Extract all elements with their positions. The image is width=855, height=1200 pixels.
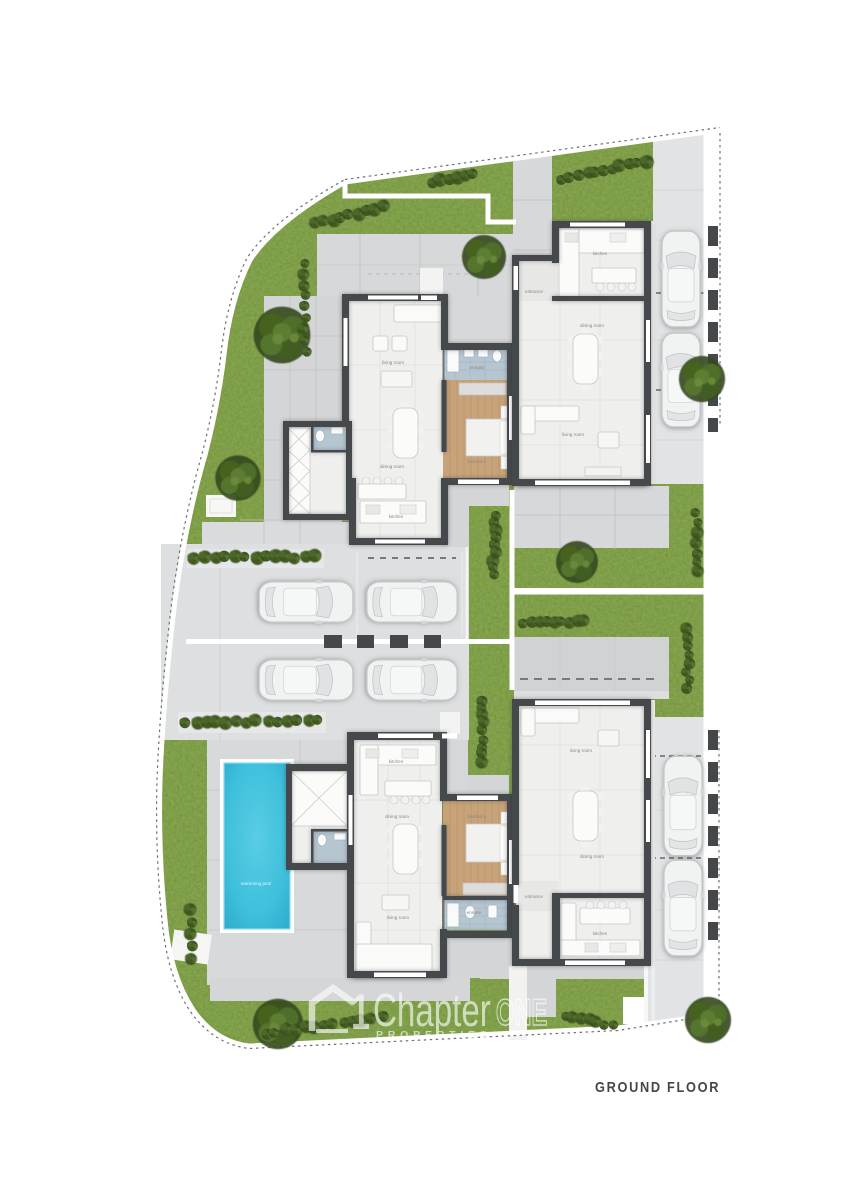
svg-text:1: 1	[351, 985, 370, 1041]
svg-text:living room: living room	[382, 360, 404, 365]
svg-text:kitchen: kitchen	[389, 759, 404, 764]
svg-text:dining room: dining room	[580, 323, 604, 328]
svg-text:bedroom: bedroom	[468, 459, 486, 464]
svg-text:living room: living room	[570, 748, 592, 753]
svg-text:entrance: entrance	[525, 894, 543, 899]
svg-text:ensuite: ensuite	[470, 365, 485, 370]
svg-text:swimming pool: swimming pool	[241, 881, 271, 886]
svg-text:kitchen: kitchen	[389, 514, 404, 519]
svg-text:GROUND FLOOR: GROUND FLOOR	[595, 1078, 720, 1095]
svg-text:ensuite: ensuite	[467, 910, 482, 915]
svg-text:living room: living room	[562, 432, 584, 437]
svg-text:living room: living room	[387, 915, 409, 920]
svg-text:kitchen: kitchen	[593, 251, 608, 256]
svg-text:bedroom: bedroom	[468, 814, 486, 819]
svg-text:dining room: dining room	[380, 464, 404, 469]
svg-text:ONE: ONE	[496, 992, 547, 1034]
svg-text:dining room: dining room	[385, 814, 409, 819]
svg-text:dining room: dining room	[580, 854, 604, 859]
svg-text:kitchen: kitchen	[593, 931, 608, 936]
svg-text:entrance: entrance	[525, 289, 543, 294]
svg-text:PROPERTIES: PROPERTIES	[376, 1029, 492, 1041]
